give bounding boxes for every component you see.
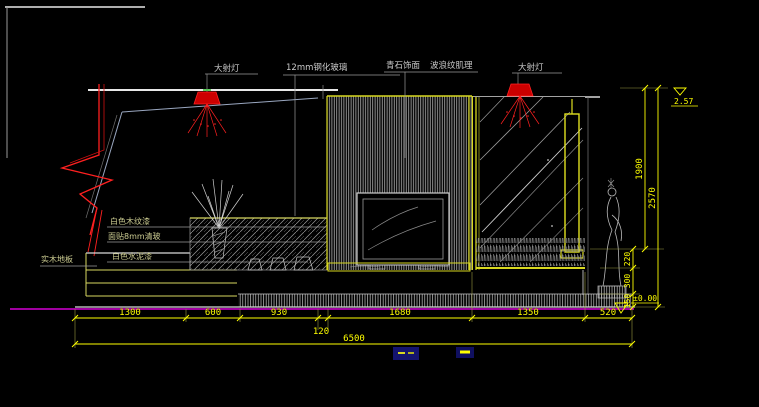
grass-strip bbox=[476, 238, 585, 268]
mini-annotation-right bbox=[456, 347, 474, 358]
dim-930: 930 bbox=[271, 308, 287, 318]
callout-spotlight-left: 大射灯 bbox=[214, 63, 240, 74]
dim-1300: 1300 bbox=[119, 308, 141, 318]
dim-2570: 2570 bbox=[648, 187, 658, 209]
mini-annotation-left bbox=[393, 347, 419, 360]
callout-stone-finish: 青石饰面 bbox=[386, 60, 421, 71]
callout-spotlight-right: 大射灯 bbox=[518, 62, 544, 73]
callout-wave-texture: 波浪纹肌理 bbox=[430, 60, 473, 71]
elevation-drawing: 大射灯 12mm钢化玻璃 青石饰面 波浪纹肌理 大射灯 白色木纹漆 面贴8mm清… bbox=[0, 0, 759, 407]
callout-glass-12mm: 12mm钢化玻璃 bbox=[286, 62, 348, 73]
dim-300: 300 bbox=[623, 274, 632, 289]
level-top-value: 2.57 bbox=[674, 97, 693, 106]
callout-solid-wood-floor: 实木地板 bbox=[41, 254, 73, 264]
dim-total-6500: 6500 bbox=[343, 334, 365, 344]
dim-1680: 1680 bbox=[389, 308, 411, 318]
callout-white-wood-paint: 白色木纹漆 bbox=[110, 216, 150, 226]
dim-120: 120 bbox=[313, 327, 329, 337]
dim-220: 220 bbox=[623, 252, 632, 267]
tv bbox=[357, 193, 449, 269]
dim-600: 600 bbox=[205, 308, 221, 318]
callout-clear-glass-8mm: 面贴8mm清玻 bbox=[108, 231, 161, 241]
dim-150: 150 bbox=[623, 294, 632, 309]
dim-1900: 1900 bbox=[635, 158, 645, 180]
cad-viewport[interactable]: 大射灯 12mm钢化玻璃 青石饰面 波浪纹肌理 大射灯 白色木纹漆 面贴8mm清… bbox=[0, 0, 759, 407]
callout-white-cement-paint: 白色水泥漆 bbox=[112, 251, 152, 261]
level-floor-value: ±0.00 bbox=[633, 294, 657, 303]
dim-1350: 1350 bbox=[517, 308, 539, 318]
dim-520: 520 bbox=[600, 308, 616, 318]
